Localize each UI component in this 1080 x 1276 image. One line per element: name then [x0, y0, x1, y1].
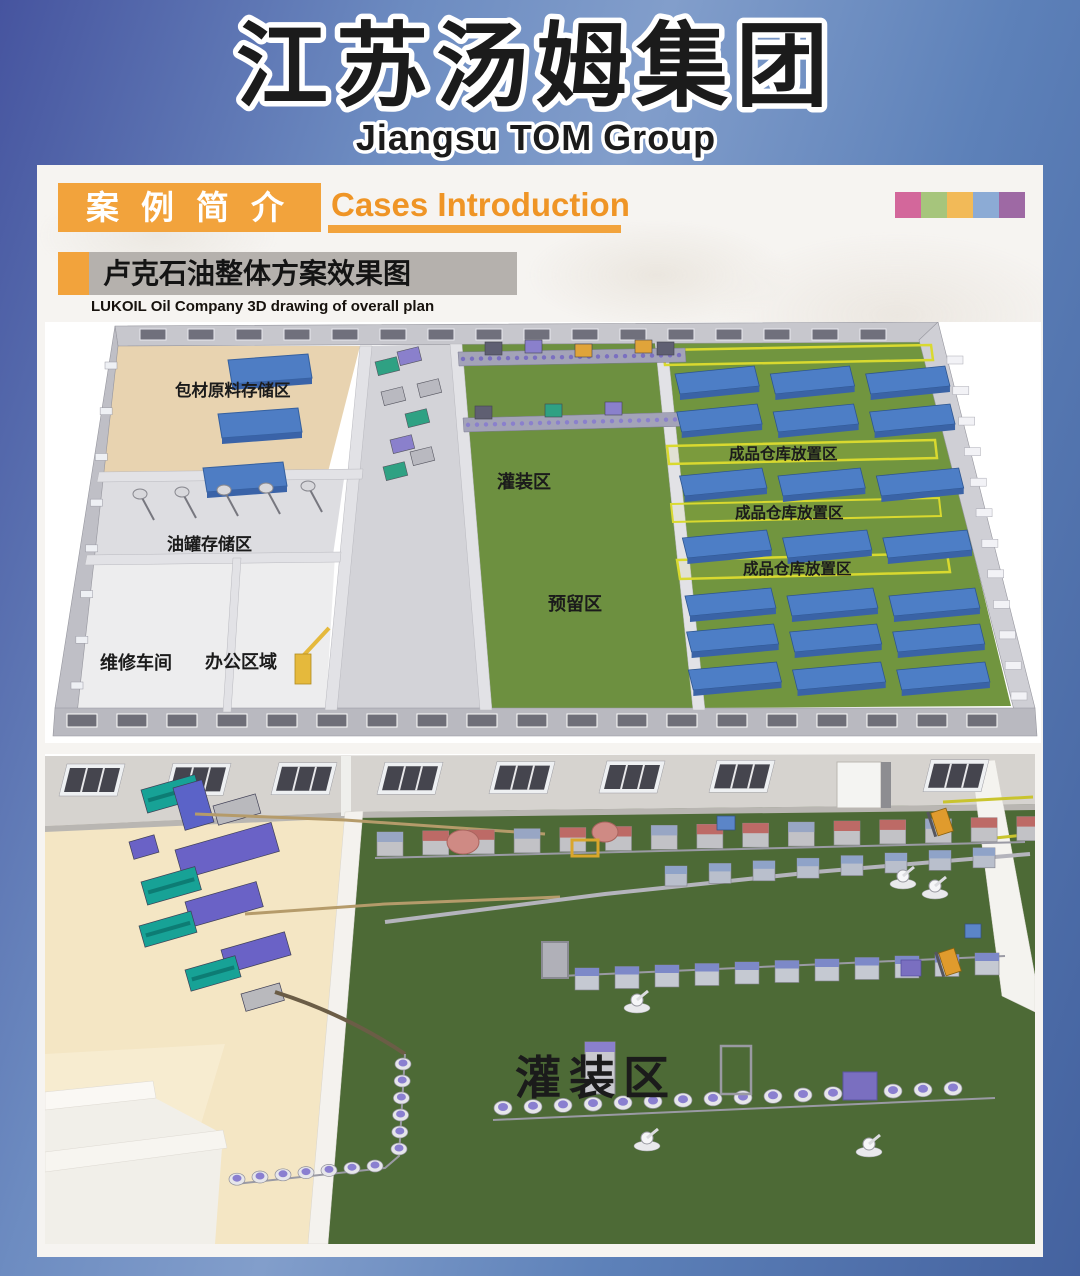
drum-cap — [395, 1128, 404, 1135]
window — [717, 714, 747, 727]
label-warehouse-row: 成品仓库放置区 — [743, 559, 852, 578]
conveyor-item — [556, 420, 560, 424]
labeling-machine — [447, 830, 479, 854]
conveyor-item — [646, 418, 650, 422]
window — [970, 478, 986, 486]
crate-top — [665, 866, 687, 874]
conveyor-item — [493, 422, 497, 426]
conveyor-item — [592, 419, 596, 423]
palette-square — [999, 192, 1025, 218]
oil-tank — [133, 489, 147, 499]
window — [860, 329, 886, 340]
drum-cap — [302, 1168, 311, 1175]
conveyor-item — [560, 355, 564, 359]
palette-square — [947, 192, 973, 218]
wall-seam — [341, 756, 351, 816]
label-reserved-area: 预留区 — [548, 593, 602, 614]
detail-3d-filling-area: 灌装区 — [45, 754, 1035, 1244]
window — [140, 329, 166, 340]
window-glass — [714, 764, 770, 788]
conveyor-item — [529, 421, 533, 425]
label-packaging-storage: 包材原料存储区 — [175, 380, 291, 400]
drum-cap — [828, 1089, 838, 1097]
window — [668, 329, 694, 340]
section-badge: 案例简介 — [58, 183, 321, 232]
window — [380, 329, 406, 340]
window — [917, 714, 947, 727]
window — [994, 600, 1010, 608]
machine — [657, 342, 674, 355]
conveyor-item — [524, 356, 528, 360]
oil-tank — [259, 483, 273, 493]
shrink-wrapper — [843, 1072, 877, 1100]
conveyor-item — [565, 420, 569, 424]
window — [709, 760, 775, 792]
drum-cap — [325, 1166, 334, 1173]
window-glass — [604, 765, 660, 789]
conveyor-item — [632, 354, 636, 358]
conveyor-item — [533, 355, 537, 359]
window — [964, 448, 980, 456]
label-oil-tank-storage: 油罐存储区 — [167, 534, 252, 554]
conveyor-item — [605, 354, 609, 358]
drum-cap — [948, 1084, 958, 1092]
machine — [901, 960, 921, 976]
crate-top — [735, 962, 759, 970]
drum-cap — [678, 1095, 688, 1103]
machine — [717, 816, 735, 830]
palette-square — [921, 192, 947, 218]
overview-render: 包材原料存储区 油罐存储区 维修车间 办公区域 灌装区 预留区 成品仓库放置区 … — [45, 322, 1041, 743]
conveyor-item — [461, 357, 465, 361]
window — [76, 636, 88, 643]
conveyor-item — [520, 421, 524, 425]
window — [90, 499, 102, 506]
conveyor-item — [610, 419, 614, 423]
window — [271, 763, 337, 795]
window — [867, 714, 897, 727]
crate-top — [695, 964, 719, 972]
label-maintenance-workshop: 维修车间 — [100, 652, 172, 673]
conveyor-item — [502, 422, 506, 426]
window — [100, 408, 112, 415]
crate-top — [834, 821, 860, 831]
crate-top — [423, 831, 449, 841]
window — [817, 714, 847, 727]
conveyor-item — [466, 423, 470, 427]
company-title-cn: 江苏汤姆集团 — [236, 16, 836, 118]
window — [467, 714, 497, 727]
window — [599, 761, 665, 793]
window-glass — [64, 768, 120, 792]
crate-top — [377, 832, 403, 842]
conveyor-item — [623, 354, 627, 358]
conveyor-item — [664, 418, 668, 422]
machine — [965, 924, 981, 938]
window — [117, 714, 147, 727]
drum-cap — [918, 1085, 928, 1093]
crane-body — [295, 654, 311, 684]
window — [976, 509, 992, 517]
label-office-area: 办公区域 — [205, 651, 277, 672]
drum-cap — [371, 1162, 380, 1169]
drum-cap — [398, 1077, 407, 1084]
window — [188, 329, 214, 340]
case-title-accent-square — [58, 252, 89, 295]
drum-cap — [768, 1091, 778, 1099]
window — [982, 539, 998, 547]
conveyor-item — [677, 353, 681, 357]
window — [567, 714, 597, 727]
drum-cap — [798, 1090, 808, 1098]
conveyor-item — [574, 420, 578, 424]
window-glass — [494, 766, 550, 790]
machine — [605, 402, 622, 415]
conveyor-item — [479, 356, 483, 360]
filling-machine-top — [585, 1042, 615, 1052]
drum-cap — [279, 1170, 288, 1177]
window — [267, 714, 297, 727]
drum-cap — [498, 1103, 508, 1111]
crate-top — [775, 961, 799, 969]
window — [367, 714, 397, 727]
window — [667, 714, 697, 727]
machine — [525, 340, 542, 353]
crate-top — [651, 825, 677, 835]
case-packer — [542, 942, 568, 978]
conveyor-item — [650, 353, 654, 357]
content-panel: 案例简介 Cases Introduction 卢克石油整体方案效果图 LUKO… — [37, 165, 1043, 1257]
filling-floor — [453, 342, 696, 708]
color-palette — [895, 192, 1025, 218]
machine — [475, 406, 492, 419]
conveyor-item — [614, 354, 618, 358]
crate-top — [929, 850, 951, 858]
window — [517, 714, 547, 727]
machine — [485, 342, 502, 355]
crate-top — [885, 853, 907, 861]
crate-top — [514, 829, 540, 839]
window — [967, 714, 997, 727]
window — [1011, 692, 1027, 700]
conveyor-item — [619, 419, 623, 423]
conveyor-item — [637, 418, 641, 422]
room-floor — [45, 1098, 223, 1244]
window — [105, 362, 117, 369]
window-glass — [276, 767, 332, 791]
window — [81, 591, 93, 598]
palette-square — [973, 192, 999, 218]
crate-top — [743, 823, 769, 833]
window — [377, 762, 443, 794]
section-underline — [328, 225, 621, 233]
drum-cap — [348, 1164, 357, 1171]
machine — [575, 344, 592, 357]
drum-cap — [888, 1086, 898, 1094]
workshop-office-floor — [58, 555, 335, 708]
conveyor-item — [470, 357, 474, 361]
header-title-graphic: 江苏汤姆集团 Jiangsu TOM Group — [0, 0, 1080, 166]
drum-cap — [708, 1094, 718, 1102]
conveyor-item — [506, 356, 510, 360]
oil-tank — [301, 481, 315, 491]
conveyor-item — [488, 356, 492, 360]
drum-cap — [395, 1145, 404, 1152]
drum-cap — [397, 1094, 406, 1101]
door — [837, 762, 881, 808]
window — [284, 329, 310, 340]
crate-top — [855, 958, 879, 966]
crate-top — [753, 861, 775, 869]
crate-top — [575, 968, 599, 976]
conveyor-item — [497, 356, 501, 360]
window — [489, 762, 555, 794]
window — [767, 714, 797, 727]
conveyor-item — [641, 354, 645, 358]
window — [236, 329, 262, 340]
conveyor-item — [583, 420, 587, 424]
door-frame — [881, 762, 891, 808]
conveyor-item — [542, 355, 546, 359]
window — [95, 453, 107, 460]
window — [476, 329, 502, 340]
overview-3d-plan: 包材原料存储区 油罐存储区 维修车间 办公区域 灌装区 预留区 成品仓库放置区 … — [45, 322, 1041, 743]
window — [617, 714, 647, 727]
crate-top — [788, 822, 814, 832]
label-warehouse-row: 成品仓库放置区 — [729, 444, 838, 463]
window — [428, 329, 454, 340]
conveyor-item — [511, 421, 515, 425]
window — [999, 631, 1015, 639]
label-filling-area-large: 灌装区 — [515, 1052, 677, 1104]
window — [217, 714, 247, 727]
window — [959, 417, 975, 425]
drum-cap — [399, 1060, 408, 1067]
window — [167, 714, 197, 727]
window — [953, 387, 969, 395]
conveyor-item — [484, 422, 488, 426]
crate-top — [841, 856, 863, 864]
palette-square — [895, 192, 921, 218]
company-title-en: Jiangsu TOM Group — [356, 117, 716, 158]
drum-cap — [233, 1175, 242, 1182]
section-title-en: Cases Introduction — [331, 186, 630, 224]
drum-cap — [256, 1173, 265, 1180]
conveyor-item — [596, 354, 600, 358]
window — [71, 682, 83, 689]
window — [86, 545, 98, 552]
poster: { "page": { "header": { "title_cn": "江苏汤… — [0, 0, 1080, 1276]
crate-top — [1017, 817, 1035, 827]
case-title: 卢克石油整体方案效果图 — [89, 252, 517, 295]
window — [1005, 661, 1021, 669]
window — [332, 329, 358, 340]
window — [988, 570, 1004, 578]
window — [716, 329, 742, 340]
crate-top — [615, 967, 639, 975]
detail-render: 灌装区 — [45, 754, 1035, 1244]
window — [572, 329, 598, 340]
oil-tank — [175, 487, 189, 497]
crate-top — [655, 965, 679, 973]
conveyor-item — [569, 355, 573, 359]
window — [812, 329, 838, 340]
crate-top — [709, 863, 731, 871]
machine — [635, 340, 652, 353]
crate-top — [560, 828, 586, 838]
window — [764, 329, 790, 340]
conveyor-item — [547, 421, 551, 425]
conveyor-item — [475, 422, 479, 426]
machine — [545, 404, 562, 417]
conveyor-item — [551, 355, 555, 359]
oil-tank — [217, 485, 231, 495]
drum-cap — [396, 1111, 405, 1118]
conveyor-item — [673, 417, 677, 421]
window — [620, 329, 646, 340]
window-glass — [382, 766, 438, 790]
window — [59, 764, 125, 796]
conveyor-item — [538, 421, 542, 425]
conveyor-item — [628, 418, 632, 422]
window-glass — [928, 764, 984, 788]
conveyor-item — [655, 418, 659, 422]
crate-top — [971, 818, 997, 828]
window — [947, 356, 963, 364]
crate-top — [973, 848, 995, 856]
window — [923, 760, 989, 792]
crate-top — [797, 858, 819, 866]
header: 江苏汤姆集团 Jiangsu TOM Group — [0, 0, 1080, 166]
case-subtitle-en: LUKOIL Oil Company 3D drawing of overall… — [91, 298, 434, 315]
window — [417, 714, 447, 727]
crate-top — [880, 820, 906, 830]
window — [317, 714, 347, 727]
window — [67, 714, 97, 727]
label-warehouse-row: 成品仓库放置区 — [735, 503, 844, 522]
window — [524, 329, 550, 340]
crate-top — [815, 959, 839, 967]
conveyor-item — [515, 356, 519, 360]
crate-top — [975, 953, 999, 961]
conveyor-item — [601, 419, 605, 423]
label-filling-area: 灌装区 — [497, 471, 551, 492]
